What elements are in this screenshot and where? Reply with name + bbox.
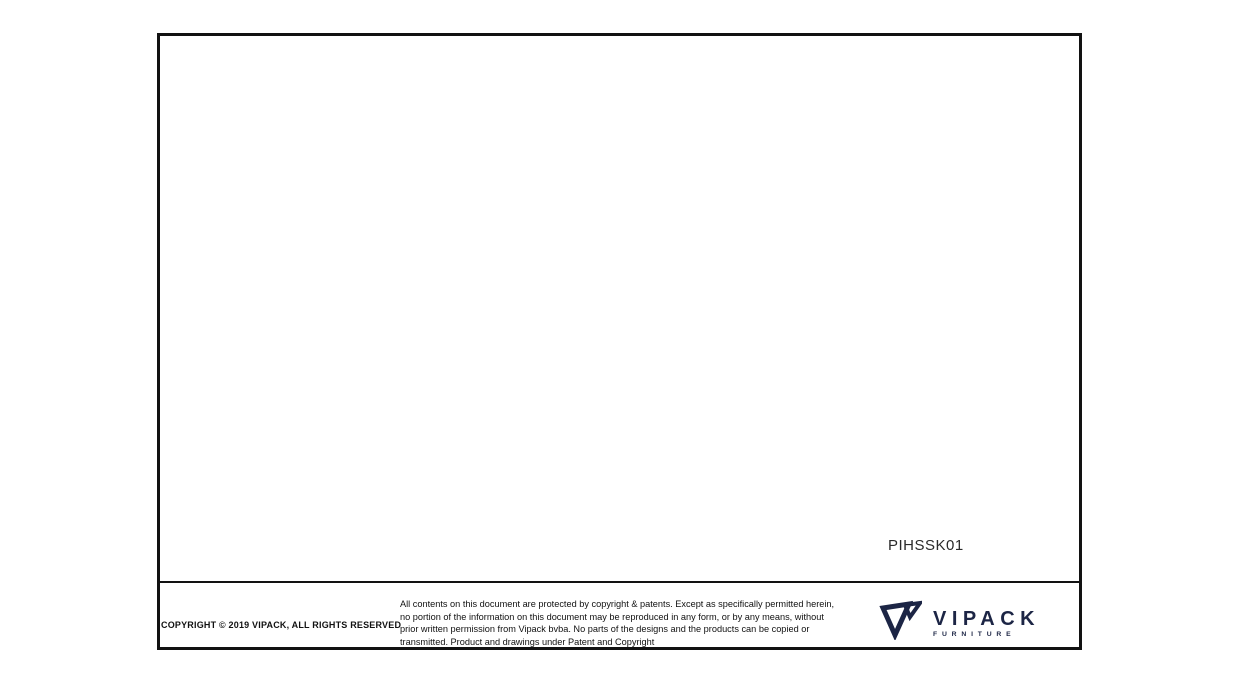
- vipack-logo-icon: [876, 600, 922, 645]
- brand-subtitle: FURNITURE: [933, 631, 1040, 638]
- brand-name: VIPACK: [933, 608, 1040, 630]
- footer-divider-line: [160, 581, 1079, 583]
- spec-sheet-page: 240mm 50mm 24mm 85mm: [0, 0, 1240, 698]
- product-code: PIHSSK01: [888, 537, 964, 554]
- legal-text: All contents on this document are protec…: [400, 598, 834, 648]
- vipack-logo: VIPACK FURNITURE: [876, 600, 1040, 645]
- copyright-notice: COPYRIGHT © 2019 VIPACK, ALL RIGHTS RESE…: [161, 620, 401, 630]
- legal-text-line: no portion of the information on this do…: [400, 611, 834, 624]
- vipack-wordmark: VIPACK FURNITURE: [933, 608, 1040, 638]
- legal-text-line: All contents on this document are protec…: [400, 598, 834, 611]
- legal-text-line: prior written permission from Vipack bvb…: [400, 623, 834, 636]
- legal-text-line: transmitted. Product and drawings under …: [400, 636, 834, 649]
- sheet-border-frame: [157, 33, 1082, 650]
